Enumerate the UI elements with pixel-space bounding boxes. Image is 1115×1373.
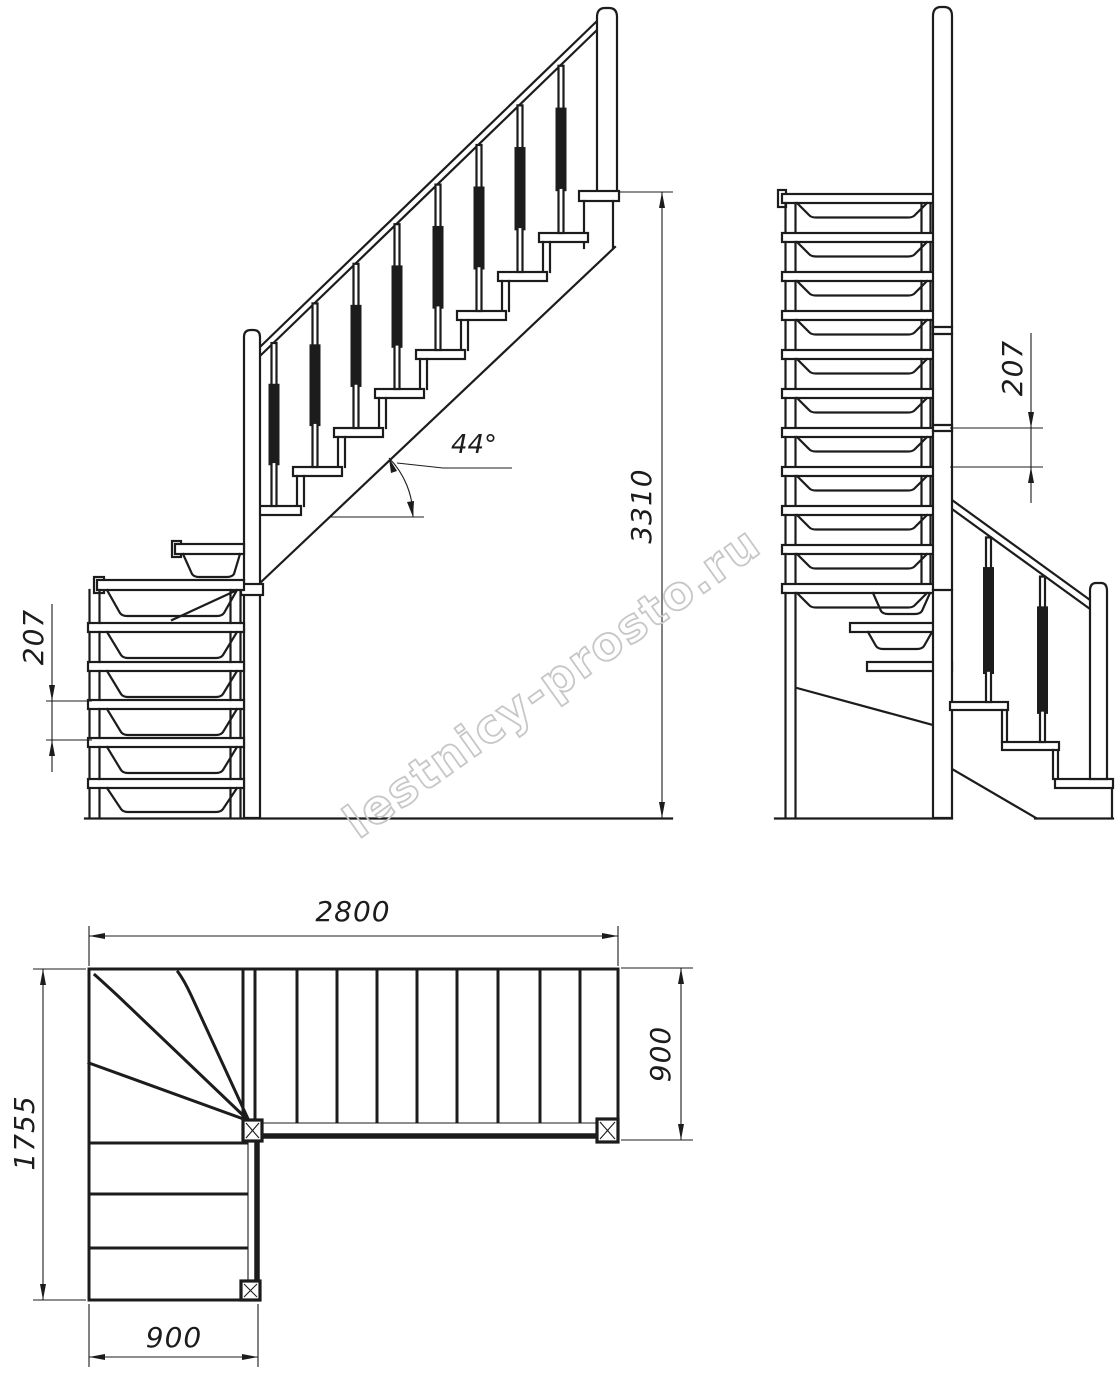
leader-line	[397, 463, 512, 468]
baluster-body	[515, 147, 526, 230]
handrail-top-line-side	[952, 500, 1090, 600]
top-newel-post	[597, 8, 617, 192]
winder-tread-bar	[88, 623, 244, 632]
dim-text-riser-side: 207	[996, 340, 1029, 396]
platform-tread	[97, 580, 244, 590]
winder-tray	[107, 632, 237, 658]
arrowhead	[1028, 412, 1034, 428]
staircase-drawing: 207 3310 44°	[0, 0, 1115, 1373]
arrowhead	[40, 1284, 46, 1300]
dimension-depth: 1755	[8, 969, 86, 1300]
winder-tray	[107, 709, 237, 735]
winder-tray	[873, 593, 930, 614]
winder-tread-bar	[88, 738, 244, 747]
winder-tread-bar	[88, 779, 244, 788]
winder-tray	[797, 203, 927, 218]
dimension-total-height: 3310	[620, 192, 673, 818]
winder-tray	[797, 398, 927, 413]
baluster-stem	[313, 303, 318, 347]
dim-text-depth: 1755	[8, 1095, 41, 1170]
winder-tray	[797, 281, 927, 296]
dimension-riser-front: 207	[17, 604, 92, 772]
platform-tray	[107, 590, 237, 616]
dim-text-lower-width: 900	[146, 1321, 202, 1354]
middle-newel-post	[244, 330, 260, 818]
side-elevation-view: 207	[775, 7, 1113, 819]
dimension-length: 2800	[89, 895, 618, 966]
arrowhead	[678, 968, 684, 984]
plan-tread-lines	[89, 969, 580, 1248]
step-tread	[539, 233, 588, 242]
dim-text-upper-width: 900	[644, 1026, 677, 1082]
winder-tray	[868, 632, 932, 649]
winder-tread-stack-front	[88, 590, 244, 818]
lower-flight-balusters	[983, 537, 1048, 742]
step-tread	[498, 272, 547, 281]
angle-annotation: 44°	[329, 430, 512, 517]
lower-step-tread	[1002, 742, 1059, 750]
baluster-stem	[559, 188, 564, 233]
upper-flight-steps	[252, 233, 588, 515]
baluster-stem	[1040, 711, 1045, 742]
arrowhead	[89, 933, 105, 939]
tall-newel-post	[933, 7, 952, 818]
arrowhead	[602, 933, 618, 939]
baluster-body	[392, 265, 403, 347]
arrowhead	[40, 969, 46, 985]
winder-tray	[797, 476, 927, 491]
baluster-body	[1037, 606, 1048, 714]
stringer-line-side	[952, 769, 1036, 818]
step-tread	[375, 389, 424, 398]
baluster-stem	[354, 264, 359, 308]
upper-flight-balusters	[269, 66, 567, 506]
baluster-stem	[1040, 577, 1045, 610]
blueprint-page: 207 3310 44°	[0, 0, 1115, 1373]
handrail-top-line	[261, 21, 597, 346]
dim-text-total-height: 3310	[625, 468, 658, 543]
baluster-body	[556, 108, 567, 192]
step-tread	[293, 467, 342, 476]
winder-tray	[107, 747, 237, 773]
winder-tread-bar	[782, 194, 935, 203]
baluster-stem	[518, 105, 523, 150]
winder-tray	[107, 671, 237, 697]
baluster-body	[433, 226, 444, 309]
winder-tray	[797, 242, 927, 257]
lower-step-tread	[1055, 779, 1113, 788]
arrowhead	[89, 1354, 105, 1360]
winder-tread-bar	[782, 467, 935, 476]
winder-tray	[107, 788, 237, 812]
dim-text-riser-front: 207	[17, 609, 50, 665]
winder-step-tread	[175, 544, 244, 554]
winder-tread-bar	[782, 311, 935, 320]
winder-tray	[797, 593, 927, 608]
step-tread	[334, 428, 383, 437]
winder-fan-line	[95, 975, 249, 1121]
winder-tread-bar	[782, 350, 935, 359]
winder-tread-bar	[782, 272, 935, 281]
dim-text-length: 2800	[315, 895, 390, 928]
plan-newel-posts	[241, 1119, 618, 1300]
arrowhead	[242, 1354, 258, 1360]
baluster-stem	[313, 423, 318, 467]
winder-tread-bar	[88, 700, 244, 709]
winder-tread-bar	[782, 233, 935, 242]
baluster-stem	[477, 266, 482, 311]
winder-tread-bar	[782, 506, 935, 515]
arrowhead	[1028, 467, 1034, 483]
winder-tray	[797, 320, 927, 335]
baluster-stem	[272, 343, 277, 387]
step-tread	[416, 350, 465, 359]
dimension-lower-width: 900	[89, 1304, 258, 1367]
baluster-body	[310, 344, 321, 426]
winder-tread-stack-side	[778, 190, 935, 818]
baluster-body	[351, 305, 362, 387]
arrowhead	[659, 802, 665, 818]
baluster-body	[983, 567, 994, 674]
winder-tread-bar	[782, 545, 935, 554]
baluster-stem	[395, 345, 400, 389]
arrowhead	[49, 740, 55, 756]
step-tread	[457, 311, 506, 320]
winder-tread-bar	[88, 662, 244, 671]
baluster-stem	[477, 145, 482, 190]
winder-tread	[850, 623, 943, 632]
arrowhead	[49, 685, 55, 701]
baluster-stem	[436, 305, 441, 350]
winder-tray	[797, 359, 927, 374]
winder-tread-bar	[782, 584, 935, 593]
winder-tread-bar	[782, 389, 935, 398]
bottom-newel-post	[1090, 583, 1107, 779]
baluster-body	[474, 186, 485, 269]
arrowhead	[678, 1124, 684, 1140]
baluster-stem	[559, 66, 564, 111]
arrowhead	[659, 192, 665, 208]
baluster-stem	[436, 185, 441, 230]
angle-text: 44°	[451, 430, 497, 460]
winder-tray	[797, 437, 927, 452]
handrail-bottom-line-side	[952, 509, 1090, 609]
watermark-text: lestnicy-prosto.ru	[333, 515, 770, 848]
baluster-body	[269, 384, 280, 465]
baluster-stem	[354, 384, 359, 428]
baluster-stem	[272, 462, 277, 506]
baluster-stem	[986, 671, 991, 702]
stringer-line-side	[797, 688, 933, 725]
dimension-riser-side: 207	[950, 333, 1043, 503]
handrail-bottom-line	[261, 30, 597, 355]
arrowhead	[407, 501, 414, 517]
winder-tray	[797, 554, 927, 569]
baluster-stem	[518, 227, 523, 272]
baluster-stem	[986, 537, 991, 570]
plan-view: 2800 900 1755 900	[8, 895, 693, 1367]
top-landing-tread	[579, 191, 619, 201]
winder-tray	[797, 515, 927, 530]
winder-step-tray	[183, 554, 240, 577]
winder-tread-bar	[782, 428, 935, 437]
lower-step-tread	[950, 702, 1008, 710]
dimension-upper-width: 900	[621, 968, 693, 1140]
baluster-stem	[395, 224, 400, 268]
